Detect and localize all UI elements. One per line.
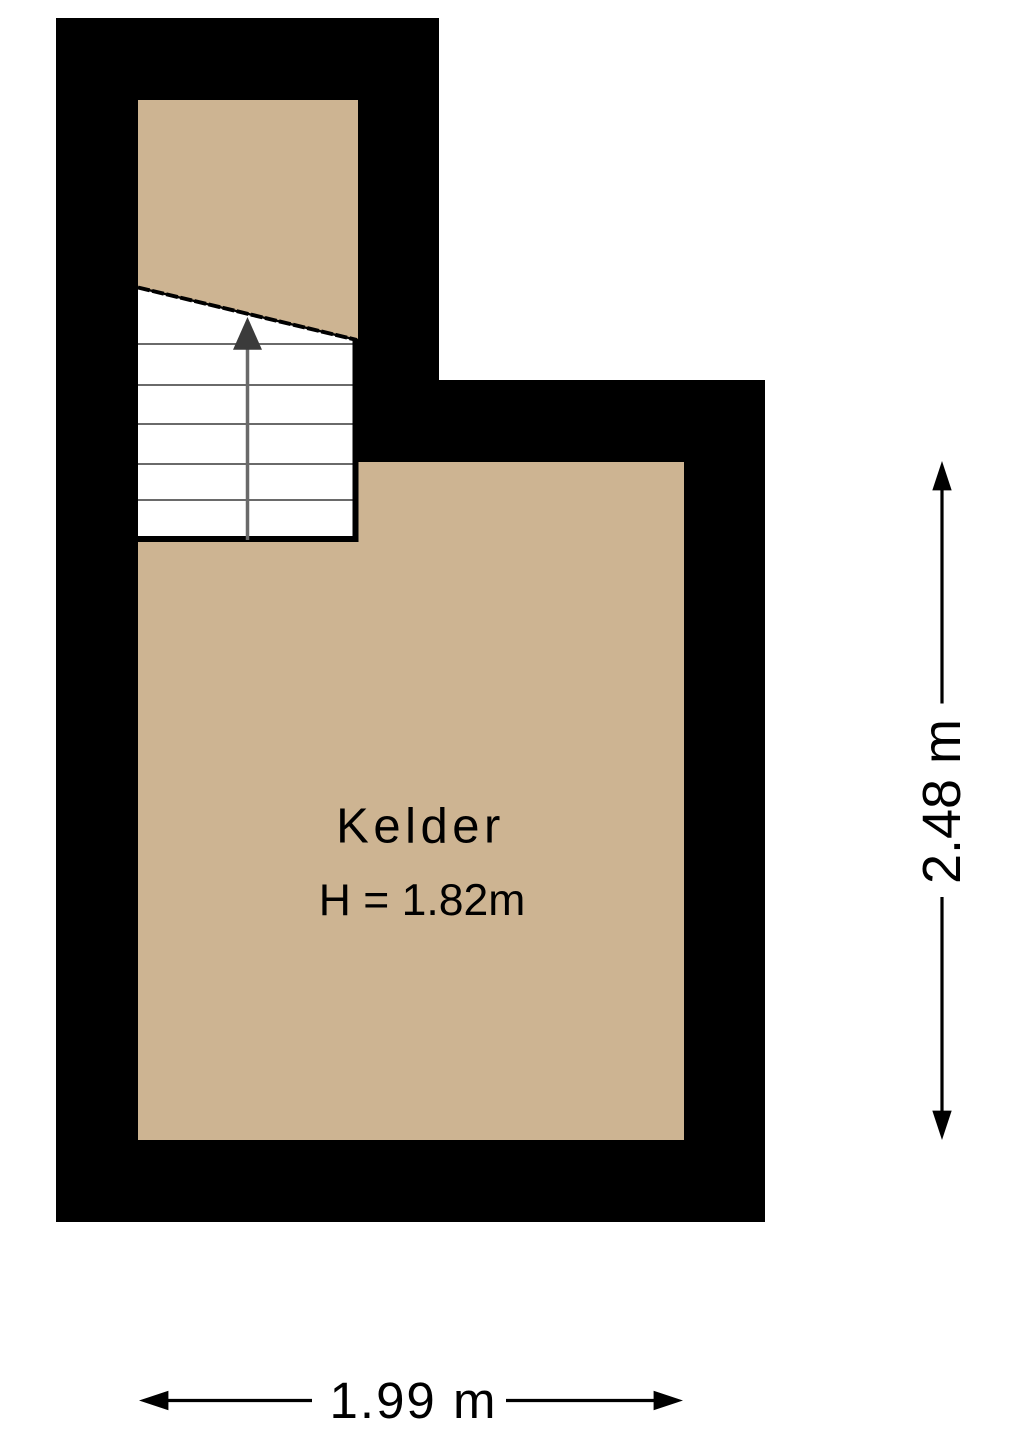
svg-text:H = 1.82m: H = 1.82m [319, 876, 526, 925]
svg-text:1.99 m: 1.99 m [330, 1372, 498, 1429]
svg-text:Kelder: Kelder [336, 800, 505, 854]
svg-text:2.48 m: 2.48 m [912, 719, 972, 884]
